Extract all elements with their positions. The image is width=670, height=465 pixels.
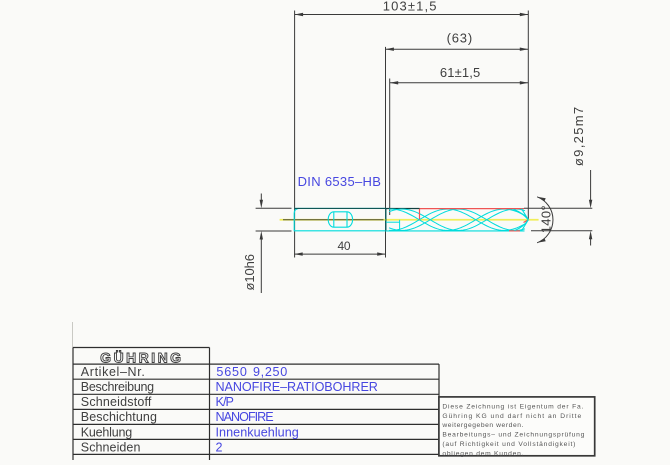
svg-text:Gühring KG und darf nicht an D: Gühring KG und darf nicht an Dritte xyxy=(442,413,582,420)
svg-text:(auf Richtigkeit und Vollständ: (auf Richtigkeit und Vollständigkeit) xyxy=(442,441,576,448)
svg-text:Schneiden: Schneiden xyxy=(81,441,141,455)
svg-text:Kuehlung: Kuehlung xyxy=(81,425,132,439)
svg-text:GÜHRING: GÜHRING xyxy=(100,350,183,366)
svg-text:weitergegeben werden.: weitergegeben werden. xyxy=(441,422,524,429)
svg-text:9,250: 9,250 xyxy=(253,365,288,379)
svg-text:K/P: K/P xyxy=(216,395,234,409)
svg-text:103±1,5: 103±1,5 xyxy=(383,0,438,13)
svg-text:Bearbeitungs– und Zeichnungspr: Bearbeitungs– und Zeichnungsprüfung xyxy=(442,432,585,439)
svg-text:NANOFIRE–RATIOBOHRER: NANOFIRE–RATIOBOHRER xyxy=(216,380,378,394)
svg-text:ø10h6: ø10h6 xyxy=(242,254,257,290)
svg-text:ø9,25m7: ø9,25m7 xyxy=(571,106,586,167)
svg-text:Diese Zeichnung ist Eigentum d: Diese Zeichnung ist Eigentum der Fa. xyxy=(442,403,584,410)
svg-text:40: 40 xyxy=(338,239,351,253)
svg-text:Beschichtung: Beschichtung xyxy=(81,410,157,424)
svg-text:Beschreibung: Beschreibung xyxy=(81,380,154,394)
svg-text:5650: 5650 xyxy=(216,365,247,379)
svg-text:140°: 140° xyxy=(539,205,554,233)
svg-text:NANOFIRE: NANOFIRE xyxy=(216,410,274,424)
svg-text:DIN 6535–HB: DIN 6535–HB xyxy=(298,174,382,189)
svg-text:2: 2 xyxy=(216,441,223,455)
svg-text:(63): (63) xyxy=(447,30,473,45)
svg-text:Innenkuehlung: Innenkuehlung xyxy=(216,425,299,439)
svg-text:Artikel–Nr.: Artikel–Nr. xyxy=(81,365,146,379)
svg-text:61±1,5: 61±1,5 xyxy=(440,65,480,80)
svg-text:obliegen dem Kunden.: obliegen dem Kunden. xyxy=(442,450,524,457)
svg-text:Schneidstoff: Schneidstoff xyxy=(81,395,152,409)
